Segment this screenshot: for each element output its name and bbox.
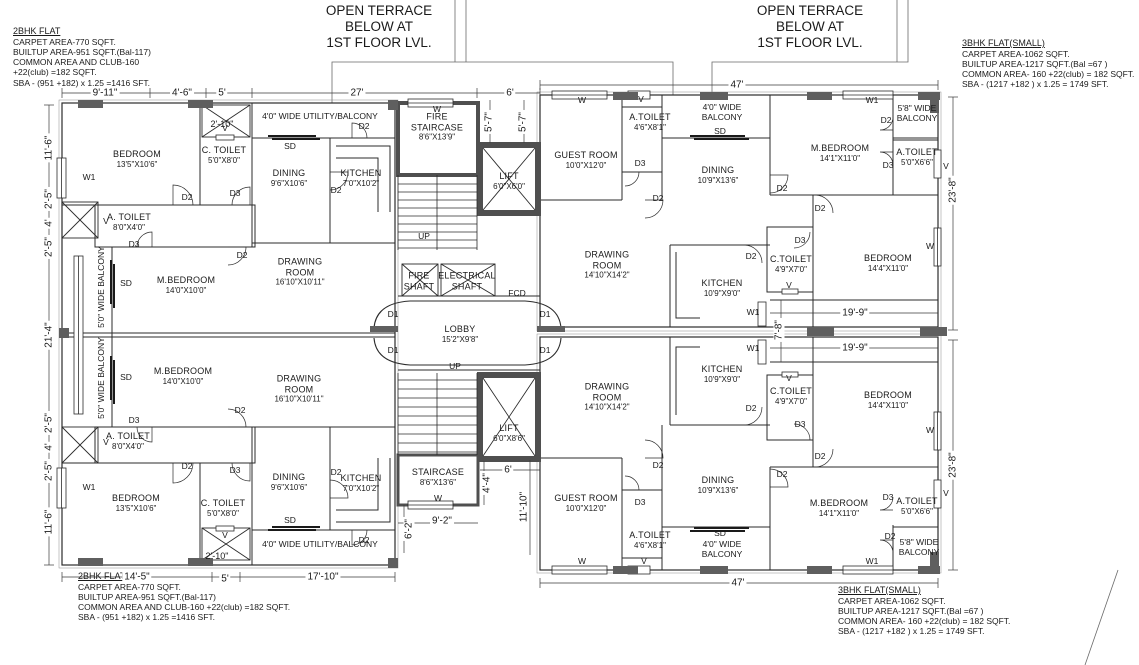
floor-plan-linework [0, 0, 1139, 665]
utility-balcony-label-top: 4'0" WIDE UTILITY/BALCONY [262, 111, 378, 121]
door-tag-d2: D2 [235, 405, 246, 415]
flat-title: 2BHK FLAT [13, 26, 151, 37]
terrace-line2: BELOW AT [757, 19, 863, 35]
dim-27: 27' [348, 88, 365, 99]
dim-2-10: 2'-10" [204, 551, 231, 561]
dim-2-5: 2'-5" [44, 459, 55, 483]
window-tag-w1: W1 [83, 172, 96, 182]
sliding-door-tag-sd: SD [284, 515, 296, 525]
dim-11-6: 11'-6" [44, 134, 55, 163]
room-label-dining-bl: DINING9'6"X10'6" [271, 472, 307, 492]
wide-balcony-label-left-top: 5'0" WIDE BALCONY [96, 246, 106, 328]
dim-4-4: 4'-4" [482, 471, 493, 495]
door-tag-d3: D3 [129, 239, 140, 249]
vent-tag-v: V [786, 373, 792, 383]
dim-2-5: 2'-5" [44, 235, 55, 259]
door-tag-d3: D3 [795, 235, 806, 245]
door-tag-d2: D2 [331, 185, 342, 195]
window-tag-w1: W1 [83, 482, 96, 492]
door-tag-d3: D3 [635, 158, 646, 168]
window-tag-w1: W1 [747, 307, 760, 317]
door-tag-d2: D2 [359, 121, 370, 131]
dim-9-11: 9'-11" [91, 88, 120, 99]
room-label-lobby: LOBBY15'2"X9'8" [442, 324, 478, 344]
vent-tag-v: V [641, 556, 647, 566]
room-label-dining-tl: DINING9'6"X10'6" [271, 168, 307, 188]
window-tag-w: W [434, 493, 442, 503]
dim-47-bottom: 47' [729, 578, 746, 589]
room-label-atoilet-br: A.TOILET4'6"X8'1" [629, 530, 670, 550]
vent-tag-v: V [943, 488, 949, 498]
door-tag-d1: D1 [388, 345, 399, 355]
door-tag-d2: D2 [881, 115, 892, 125]
terrace-line1: OPEN TERRACE [326, 3, 432, 19]
door-tag-d2: D2 [237, 250, 248, 260]
room-label-kitchen-tr: KITCHEN10'9"X9'0" [702, 278, 743, 298]
dim-5: 5' [216, 88, 227, 99]
stairs-up-label: UP [449, 361, 461, 371]
room-label-ctoilet-tr: C.TOILET4'9"X7'0" [770, 254, 812, 274]
window-tag-w: W [578, 95, 586, 105]
open-terrace-label-left: OPEN TERRACE BELOW AT 1ST FLOOR LVL. [326, 3, 432, 52]
room-label-ctoilet-bl: C. TOILET5'0"X8'0" [201, 498, 245, 518]
window-tag-w: W [433, 104, 441, 114]
door-tag-d2: D2 [746, 403, 757, 413]
door-tag-d3: D3 [230, 465, 241, 475]
dim-4-6: 4'-6" [170, 88, 194, 99]
wide-balcony-label-br: 4'0" WIDE BALCONY [702, 539, 743, 559]
terrace-line3: 1ST FLOOR LVL. [326, 35, 432, 51]
room-label-kitchen-br: KITCHEN10'9"X9'0" [702, 364, 743, 384]
stairs-up-label: UP [418, 231, 430, 241]
dim-6-2: 6'-2" [404, 517, 415, 541]
door-tag-d3: D3 [795, 419, 806, 429]
room-label-kitchen-bl: KITCHEN7'0"X10'2" [341, 473, 382, 493]
dim-2-10: 2'-10" [209, 119, 236, 129]
room-label-drawing-tl: DRAWING ROOM16'10"X10'11" [275, 257, 324, 288]
door-tag-d2: D2 [777, 183, 788, 193]
door-tag-d3: D3 [230, 188, 241, 198]
flat-title: 2BHK FLAT [78, 571, 290, 582]
door-tag-d3: D3 [635, 497, 646, 507]
dim-21-4: 21'-4" [44, 320, 55, 349]
room-label-atoilet-tr-right: A.TOILET5'0"X6'6" [896, 147, 937, 167]
floor-plan-canvas: OPEN TERRACE BELOW AT 1ST FLOOR LVL. OPE… [0, 0, 1139, 665]
door-tag-d3: D3 [883, 492, 894, 502]
flat-title: 3BHK FLAT(SMALL) [838, 585, 1010, 596]
door-tag-d2: D2 [653, 193, 664, 203]
room-label-dining-tr: DINING10'9"X13'6" [698, 165, 739, 185]
room-label-staircase: STAIRCASE8'6"X13'6" [412, 467, 464, 487]
door-tag-d2: D2 [182, 192, 193, 202]
dim-23-8: 23'-8" [948, 175, 959, 204]
room-label-drawing-tr: DRAWING ROOM14'10"X14'2" [584, 250, 629, 281]
room-label-drawing-br: DRAWING ROOM14'10"X14'2" [584, 382, 629, 413]
dim-2-5: 2'-5" [44, 187, 55, 211]
door-tag-d2: D2 [182, 461, 193, 471]
room-label-atoilet-br-right: A.TOILET5'0"X6'6" [896, 496, 937, 516]
door-tag-d2: D2 [885, 531, 896, 541]
terrace-line3: 1ST FLOOR LVL. [757, 35, 863, 51]
sliding-door-tag-sd: SD [714, 126, 726, 136]
room-label-atoilet-tr: A.TOILET4'6"X8'1" [629, 112, 670, 132]
sliding-door-tag-sd: SD [120, 278, 132, 288]
fcd-label: FCD [508, 288, 525, 298]
wide-balcony-58-label-br: 5'8" WIDE BALCONY [899, 537, 940, 557]
dim-19-9: 19'-9" [840, 308, 869, 319]
door-tag-d3: D3 [883, 160, 894, 170]
door-tag-d2: D2 [815, 451, 826, 461]
wide-balcony-label-tr: 4'0" WIDE BALCONY [702, 102, 743, 122]
vent-tag-v: V [786, 280, 792, 290]
room-label-mbedroom-tl: M.BEDROOM14'0"X10'0" [157, 275, 215, 295]
window-tag-w1: W1 [866, 556, 879, 566]
window-tag-w1: W1 [747, 343, 760, 353]
vent-tag-v: V [943, 161, 949, 171]
vent-tag-v: V [103, 216, 109, 226]
wide-balcony-label-left-bottom: 5'0" WIDE BALCONY [96, 337, 106, 419]
flat-info-3bhk-top: 3BHK FLAT(SMALL) CARPET AREA-1062 SQFT. … [962, 38, 1134, 90]
flat-info-3bhk-bottom: 3BHK FLAT(SMALL) CARPET AREA-1062 SQFT. … [838, 585, 1010, 637]
terrace-line2: BELOW AT [326, 19, 432, 35]
room-label-atoilet-tl: A. TOILET8'0"X4'0" [107, 212, 151, 232]
room-label-lift-top: LIFT6'0"X6'0" [493, 171, 525, 191]
wide-balcony-58-label-tr: 5'8" WIDE BALCONY [897, 103, 938, 123]
dim-14-5: 14'-5" [122, 572, 151, 583]
window-tag-w: W [926, 425, 934, 435]
room-label-bedroom-br: BEDROOM14'4"X11'0" [864, 390, 912, 410]
door-tag-d2: D2 [653, 460, 664, 470]
room-label-fire-staircase: FIRE STAIRCASE8'6"X13'9" [411, 112, 463, 143]
flat-info-2bhk-top: 2BHK FLAT CARPET AREA-770 SQFT. BUILTUP … [13, 26, 151, 88]
dim-6: 6' [502, 465, 513, 476]
room-label-bedroom-tr: BEDROOM14'4"X11'0" [864, 253, 912, 273]
dim-19-9: 19'-9" [840, 343, 869, 354]
sliding-door-tag-sd: SD [284, 141, 296, 151]
room-label-ctoilet-br: C.TOILET4'9"X7'0" [770, 386, 812, 406]
vent-tag-v: V [222, 530, 228, 540]
dim-7-8: 7'-8" [774, 318, 785, 342]
vent-tag-v: V [103, 437, 109, 447]
open-terrace-label-right: OPEN TERRACE BELOW AT 1ST FLOOR LVL. [757, 3, 863, 52]
room-label-mbedroom-tr: M.BEDROOM14'1"X11'0" [811, 143, 869, 163]
dim-5-7: 5'-7" [484, 110, 495, 134]
window-tag-w: W [578, 556, 586, 566]
room-label-guest-tr: GUEST ROOM10'0"X12'0" [554, 150, 617, 170]
room-label-dining-br: DINING10'9"X13'6" [698, 475, 739, 495]
door-tag-d3: D3 [129, 415, 140, 425]
flat-info-2bhk-bottom: 2BHK FLAT CARPET AREA-770 SQFT. BUILTUP … [78, 571, 290, 623]
door-tag-d1: D1 [540, 345, 551, 355]
dim-11-6: 11'-6" [44, 508, 55, 537]
room-label-mbedroom-bl: M.BEDROOM14'0"X10'0" [154, 366, 212, 386]
door-tag-d2: D2 [359, 535, 370, 545]
room-label-guest-br: GUEST ROOM10'0"X12'0" [554, 493, 617, 513]
door-tag-d1: D1 [540, 309, 551, 319]
dim-4: 4' [44, 441, 55, 452]
room-label-drawing-bl: DRAWING ROOM16'10"X10'11" [274, 374, 323, 405]
door-tag-d2: D2 [815, 203, 826, 213]
vent-tag-v: V [638, 94, 644, 104]
door-tag-d2: D2 [331, 467, 342, 477]
dim-9-2: 9'-2" [430, 516, 454, 527]
window-tag-w1: W1 [866, 95, 879, 105]
room-label-fire-shaft: FIRE SHAFT [404, 270, 435, 291]
dim-4: 4' [44, 217, 55, 228]
dim-23-8: 23'-8" [948, 450, 959, 479]
room-label-lift-bottom: LIFT6'0"X8'6" [493, 423, 525, 443]
room-label-kitchen-tl: KITCHEN7'0"X10'2" [341, 168, 382, 188]
sliding-door-tag-sd: SD [714, 528, 726, 538]
dim-5-7: 5'-7" [518, 110, 529, 134]
room-label-atoilet-bl: A. TOILET8'0"X4'0" [106, 431, 150, 451]
dim-6: 6' [504, 88, 515, 99]
door-tag-d1: D1 [388, 309, 399, 319]
door-tag-d2: D2 [777, 469, 788, 479]
dim-47-top: 47' [728, 80, 745, 91]
room-label-bedroom-bl: BEDROOM13'5"X10'6" [112, 493, 160, 513]
room-label-ctoilet-tl: C. TOILET5'0"X8'0" [202, 145, 246, 165]
dim-17-10: 17'-10" [305, 572, 340, 583]
dim-5: 5' [219, 574, 230, 585]
flat-title: 3BHK FLAT(SMALL) [962, 38, 1134, 49]
sliding-door-tag-sd: SD [120, 372, 132, 382]
room-label-bedroom-tl: BEDROOM13'5"X10'6" [113, 149, 161, 169]
window-tag-w: W [926, 241, 934, 251]
door-tag-d2: D2 [746, 251, 757, 261]
room-label-electrical-shaft: ELECTRICAL SHAFT [438, 270, 496, 291]
dim-2-5: 2'-5" [44, 411, 55, 435]
room-label-mbedroom-br: M.BEDROOM14'1"X11'0" [810, 498, 868, 518]
terrace-line1: OPEN TERRACE [757, 3, 863, 19]
dim-11-10: 11'-10" [519, 490, 530, 524]
